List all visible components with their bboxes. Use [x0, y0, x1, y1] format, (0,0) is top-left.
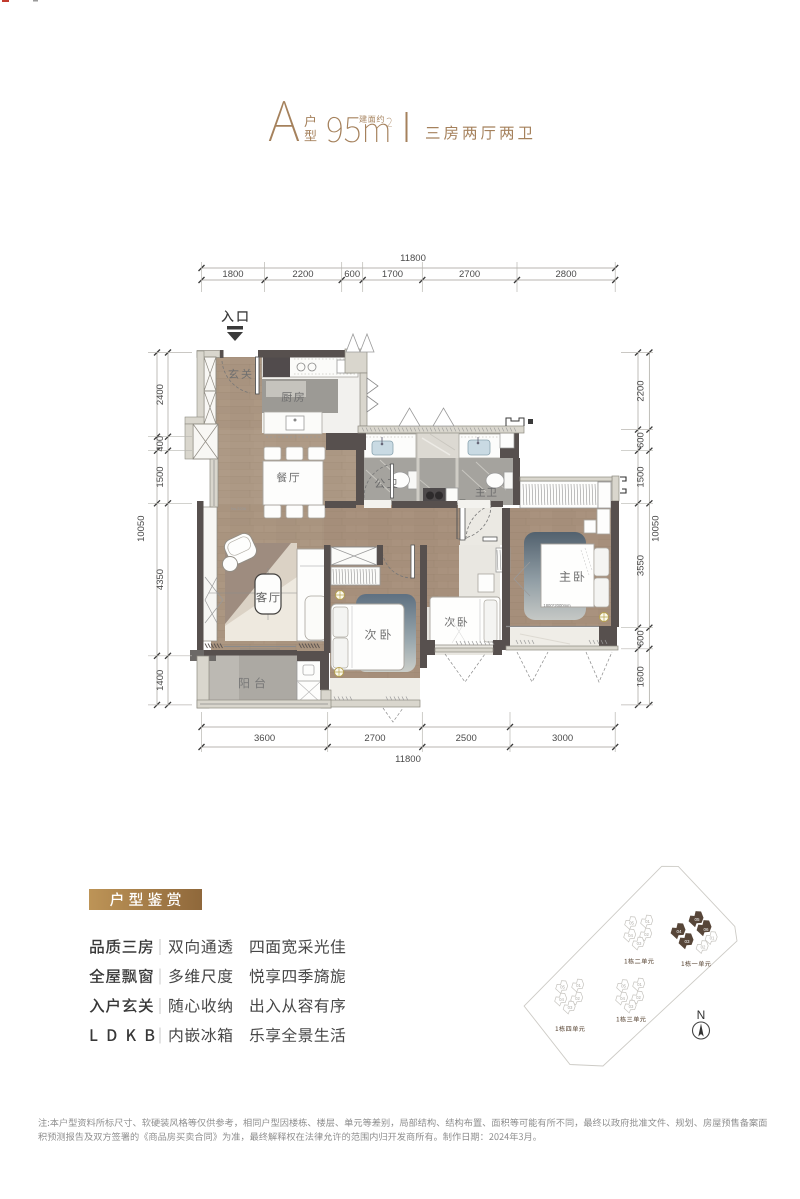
svg-text:04: 04 [628, 933, 633, 938]
svg-text:2800: 2800 [556, 269, 577, 280]
svg-text:3000: 3000 [552, 733, 573, 744]
svg-text:600: 600 [344, 269, 360, 280]
svg-text:02: 02 [701, 945, 706, 950]
svg-text:1600: 1600 [636, 666, 647, 687]
svg-text:No.2236: No.2236 [231, 506, 247, 511]
svg-text:2700: 2700 [459, 269, 480, 280]
svg-text:2700: 2700 [364, 733, 385, 744]
svg-text:1500: 1500 [155, 466, 166, 487]
svg-text:2200: 2200 [636, 380, 647, 401]
svg-text:1500: 1500 [636, 466, 647, 487]
svg-text:04: 04 [676, 929, 682, 934]
svg-text:3550: 3550 [636, 555, 647, 576]
svg-text:01: 01 [710, 936, 715, 941]
svg-text:01: 01 [576, 983, 581, 988]
svg-text:03: 03 [684, 939, 690, 944]
svg-text:1800: 1800 [222, 269, 243, 280]
svg-text:N: N [697, 1008, 706, 1022]
svg-text:01: 01 [637, 982, 642, 987]
svg-text:600: 600 [636, 432, 647, 448]
svg-text:1400: 1400 [155, 670, 166, 691]
svg-text:03: 03 [629, 1004, 634, 1009]
svg-text:11800: 11800 [400, 253, 426, 264]
svg-text:05: 05 [560, 985, 565, 990]
svg-text:11800: 11800 [395, 754, 421, 765]
svg-text:05: 05 [629, 921, 634, 926]
svg-text:2200: 2200 [292, 269, 313, 280]
svg-text:1800*2000mm: 1800*2000mm [543, 603, 571, 608]
svg-text:06: 06 [703, 927, 709, 932]
svg-text:1700: 1700 [382, 269, 403, 280]
svg-text:02: 02 [575, 996, 580, 1001]
svg-text:02: 02 [636, 995, 641, 1000]
svg-text:4350: 4350 [155, 569, 166, 590]
svg-text:10050: 10050 [136, 515, 147, 541]
svg-text:03: 03 [637, 941, 642, 946]
svg-text:04: 04 [620, 996, 625, 1001]
svg-text:2500: 2500 [456, 733, 477, 744]
svg-text:05: 05 [621, 984, 626, 989]
svg-text:03: 03 [568, 1005, 573, 1010]
svg-text:01: 01 [645, 919, 650, 924]
svg-text:10050: 10050 [651, 515, 662, 541]
svg-text:05: 05 [694, 917, 700, 922]
svg-text:400: 400 [155, 436, 166, 452]
svg-text:02: 02 [644, 932, 649, 937]
svg-text:600: 600 [636, 630, 647, 646]
svg-text:3600: 3600 [254, 733, 275, 744]
svg-text:2400: 2400 [155, 384, 166, 405]
svg-text:04: 04 [559, 997, 564, 1002]
